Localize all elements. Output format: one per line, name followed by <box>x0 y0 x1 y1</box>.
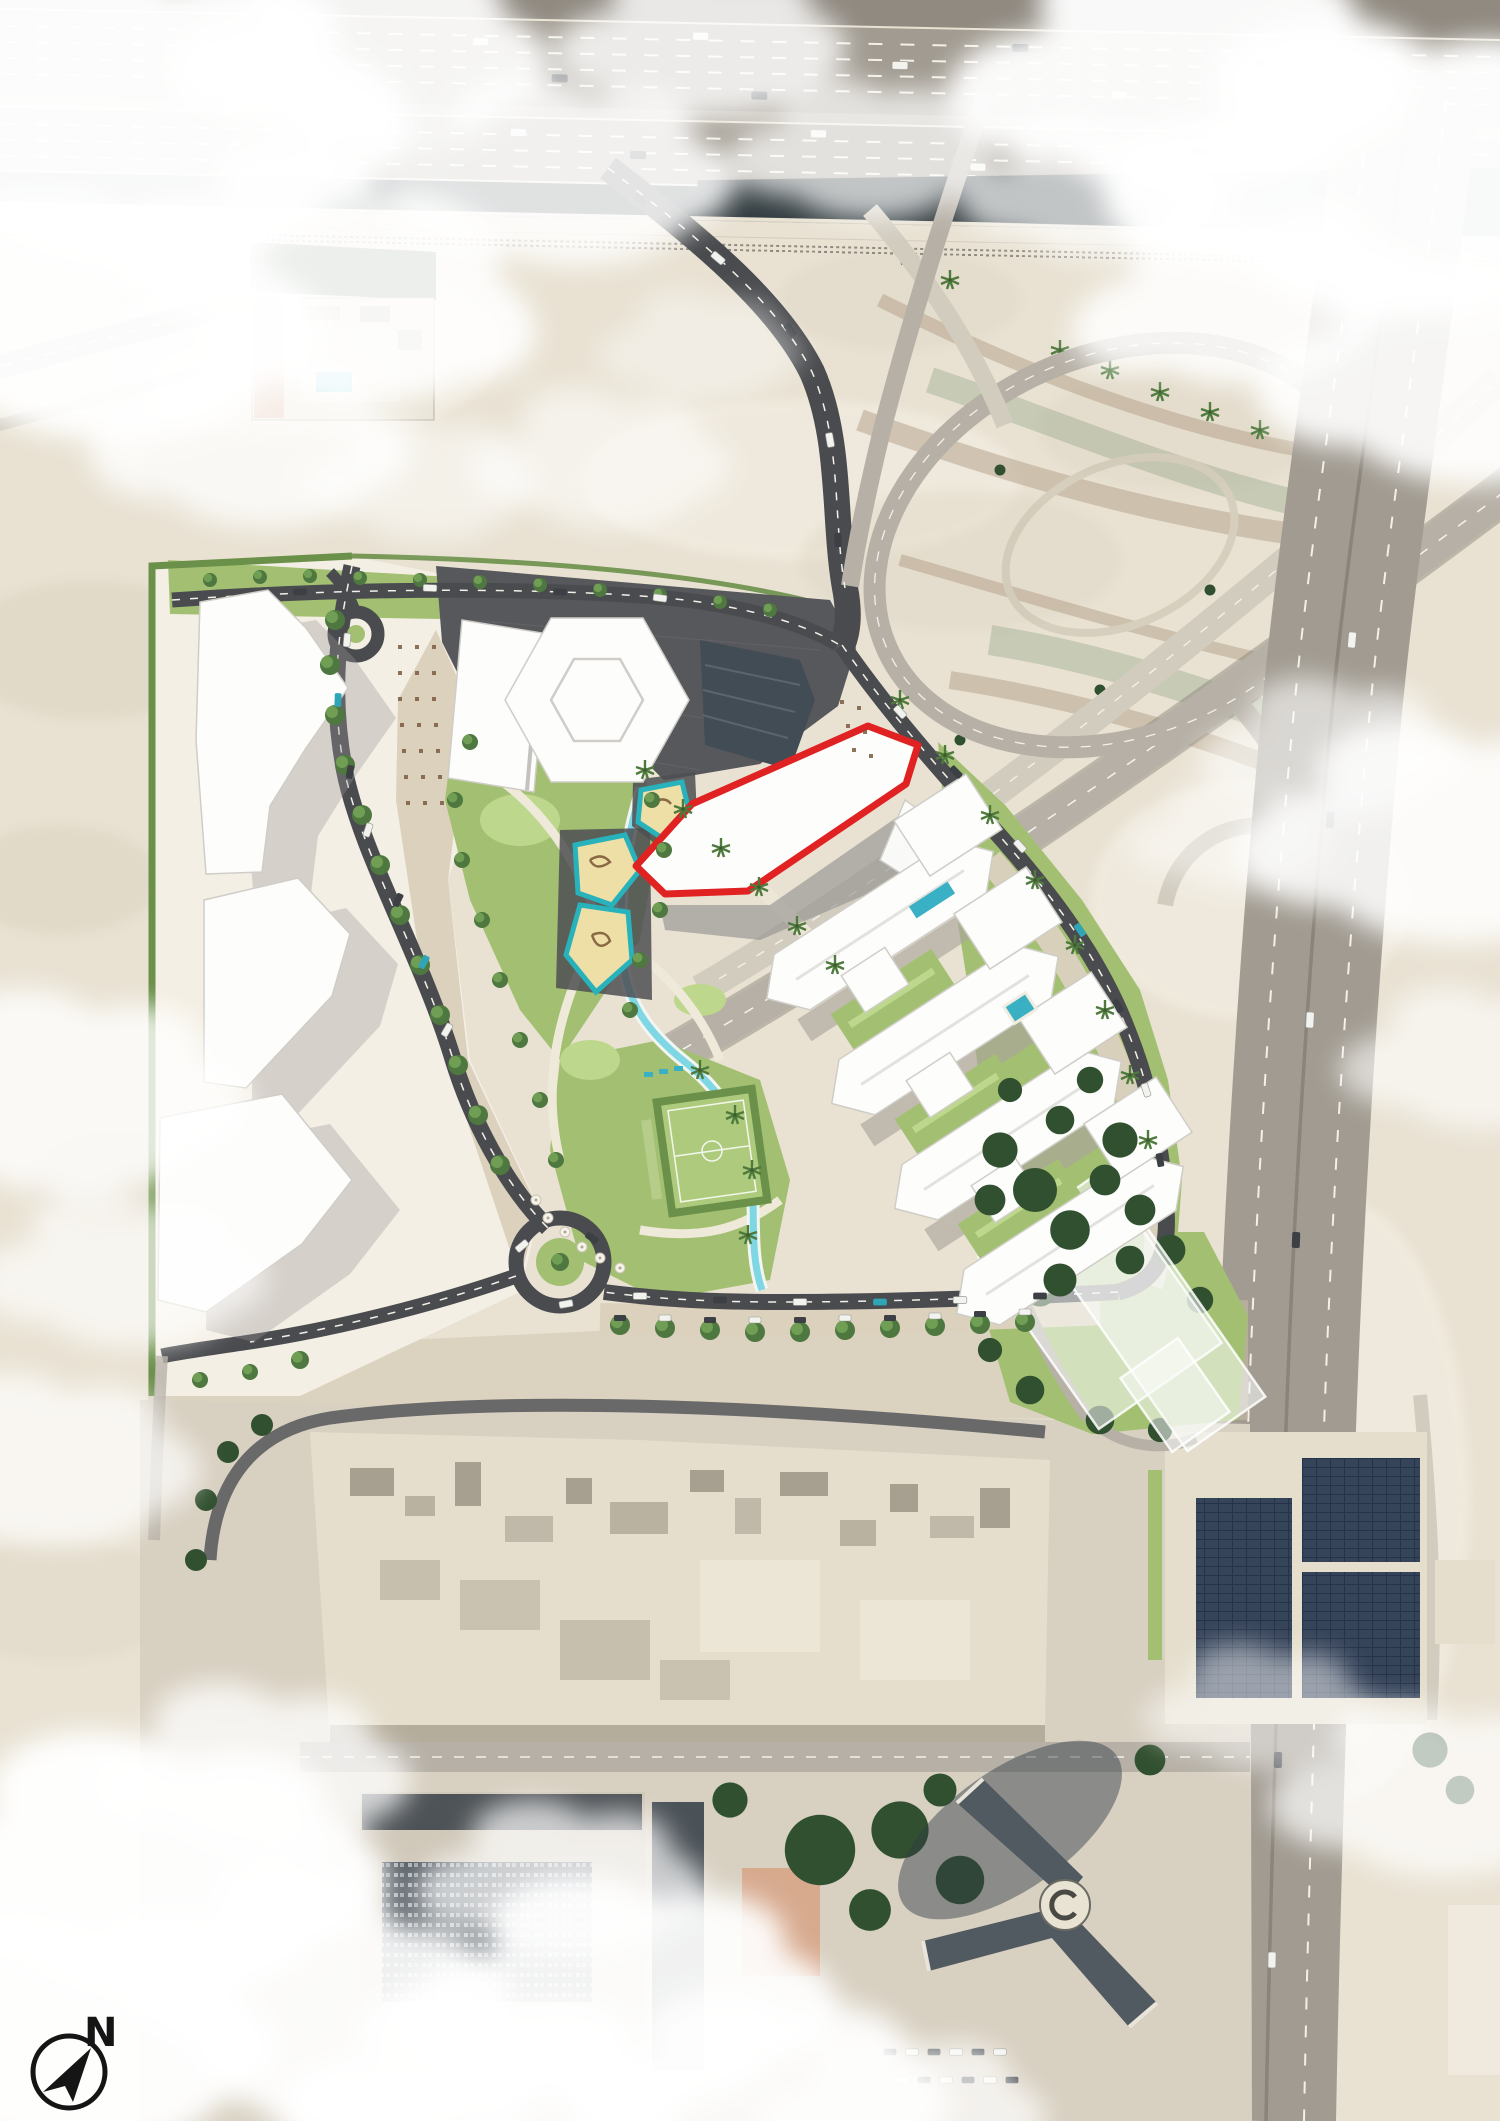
warehouse <box>1435 1560 1495 1644</box>
compass-north-label: N <box>84 2010 117 2056</box>
mall-rooftop <box>310 1432 1050 1743</box>
warehouse-strip <box>1448 1905 1500 2075</box>
site-plan-canvas: N <box>0 0 1500 2121</box>
masterplan-aerial-view: N <box>0 0 1500 2121</box>
